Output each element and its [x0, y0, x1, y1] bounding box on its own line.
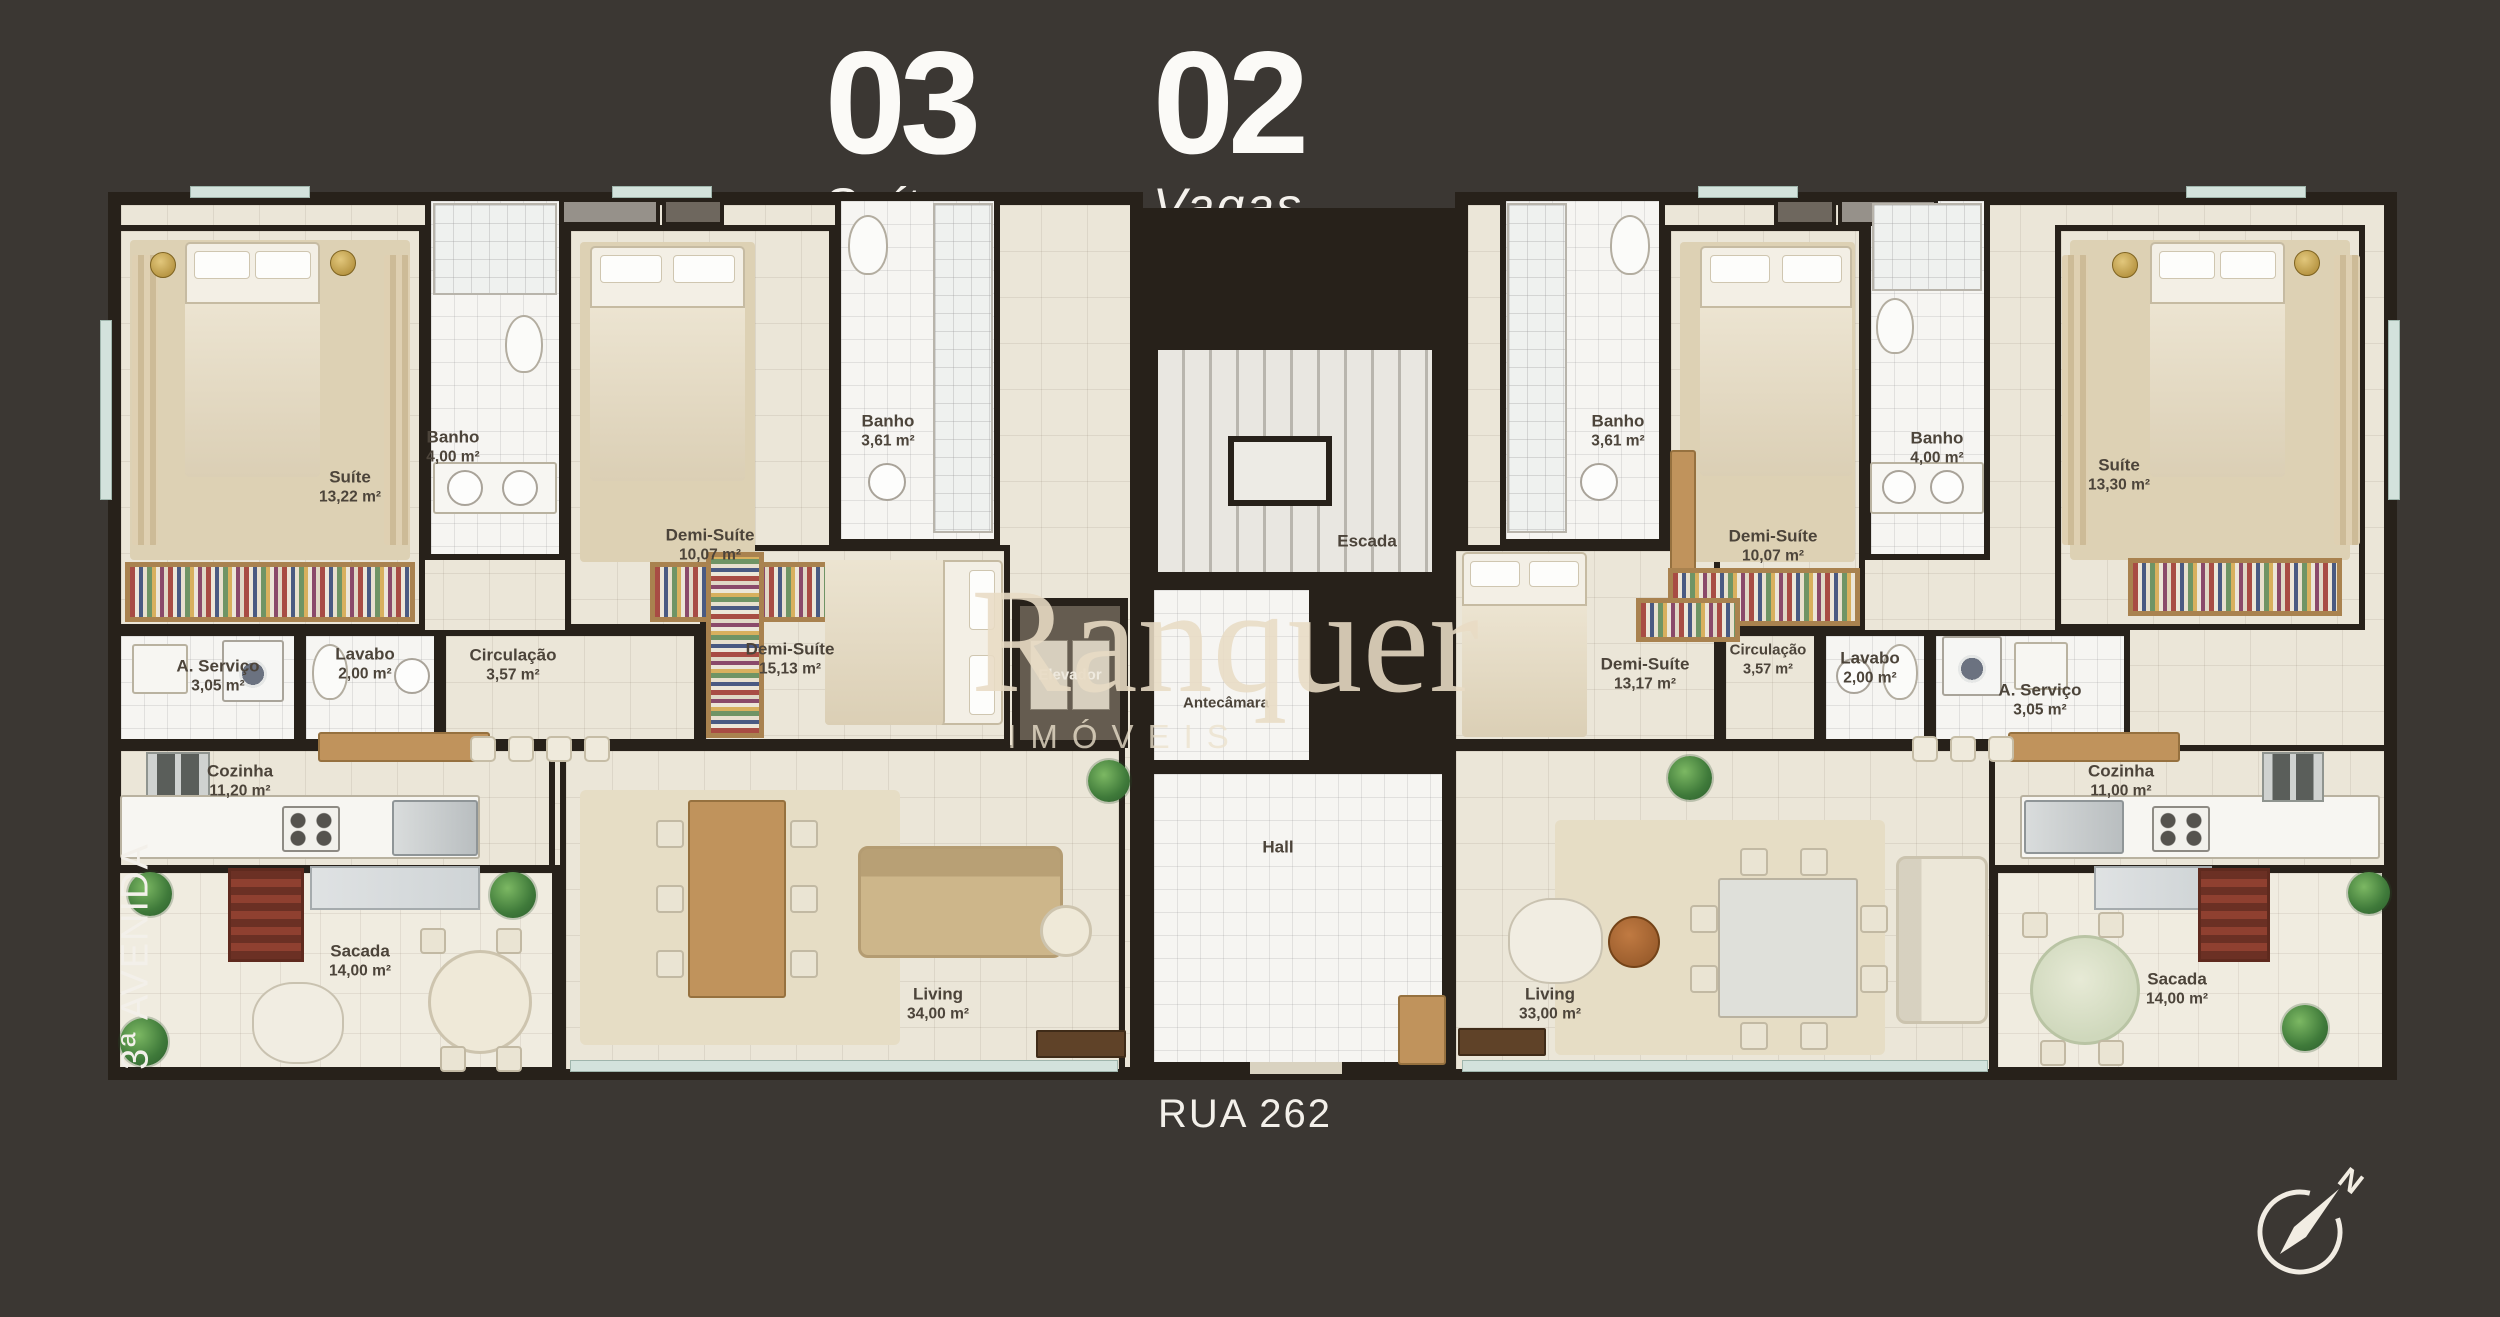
duvet [185, 302, 320, 477]
wardrobe [125, 562, 415, 622]
double-bed [2150, 242, 2285, 477]
duvet [1462, 604, 1587, 737]
tv-console [1458, 1028, 1546, 1056]
toilet [1610, 215, 1650, 275]
room-label-right-living: Living 33,00 m² [1519, 984, 1581, 1025]
toilet [505, 315, 543, 373]
bedside-lamp [150, 252, 176, 278]
chair [656, 950, 684, 978]
closet-niche [560, 198, 660, 226]
room-label-left-banho-4: Banho 4,00 m² [426, 427, 479, 468]
stair-landing [1228, 436, 1332, 506]
bar-stool [584, 736, 610, 762]
pillow [2159, 251, 2215, 279]
bedside-lamp [330, 250, 356, 276]
room-label-hall: Hall [1262, 836, 1293, 857]
stat-vagas-value: 02 [1068, 26, 1388, 181]
balcony-counter [310, 866, 480, 910]
room-label-left-banho-361: Banho 3,61 m² [861, 411, 914, 452]
double-bed [825, 560, 1003, 725]
entry-door-opening [1250, 1062, 1342, 1074]
window-strip [2388, 320, 2400, 500]
pillow [1710, 255, 1770, 283]
room-label-left-suite: Suíte 13,22 m² [319, 467, 381, 508]
chair [1800, 1022, 1828, 1050]
bar-stool [1950, 736, 1976, 762]
stat-suites-value: 03 [740, 26, 1060, 181]
chair [2098, 1040, 2124, 1066]
sofa [858, 846, 1063, 958]
compass-icon: N [2218, 1146, 2388, 1316]
kitchen-bar [2008, 732, 2180, 762]
pillow [969, 570, 995, 630]
dining-table [1718, 878, 1858, 1018]
round-table [428, 950, 532, 1054]
room-label-escada: Escada [1337, 530, 1397, 551]
plant [2348, 872, 2390, 914]
armchair [252, 982, 344, 1064]
bar-stool [1988, 736, 2014, 762]
shower [1507, 203, 1567, 533]
room-label-right-suite: Suíte 13,30 m² [2088, 455, 2150, 496]
pillow [255, 251, 311, 279]
bar-stool [1912, 736, 1938, 762]
sink [1930, 470, 1964, 504]
chair [1860, 905, 1888, 933]
room-label-right-demi-suite-13: Demi-Suíte 13,17 m² [1601, 654, 1690, 695]
side-table [1040, 905, 1092, 957]
chair [790, 820, 818, 848]
plant [1088, 760, 1130, 802]
chair [790, 950, 818, 978]
fridge [392, 800, 478, 856]
curtain [384, 255, 410, 545]
window-strip [1698, 186, 1798, 198]
room-label-right-banho-4: Banho 4,00 m² [1910, 428, 1963, 469]
stove [2152, 806, 2210, 852]
chair [1740, 1022, 1768, 1050]
chair [2040, 1040, 2066, 1066]
pillow [969, 655, 995, 715]
pillow [2220, 251, 2276, 279]
room-label-right-circulacao: Circulação 3,57 m² [1730, 642, 1807, 679]
room-label-left-cozinha: Cozinha 11,20 m² [207, 761, 273, 802]
window-strip [1462, 1060, 1988, 1072]
chair [440, 1046, 466, 1072]
stove [282, 806, 340, 852]
plant [490, 872, 536, 918]
bar-stool [546, 736, 572, 762]
double-bed [1700, 246, 1852, 476]
chair [656, 820, 684, 848]
pillow [1529, 561, 1579, 587]
washing-machine [1942, 636, 2002, 696]
room-label-elevador: Elevador [1038, 667, 1101, 686]
double-bed [590, 246, 745, 481]
duvet [2150, 302, 2285, 477]
room-label-left-lavabo: Lavabo 2,00 m² [335, 644, 395, 685]
room-label-right-demi-suite-10: Demi-Suíte 10,07 m² [1729, 526, 1818, 567]
window-strip [570, 1060, 1118, 1072]
window-strip [190, 186, 310, 198]
closet-niche [662, 198, 724, 226]
hall-console [1398, 995, 1446, 1065]
sink [1882, 470, 1916, 504]
chair [790, 885, 818, 913]
chair [1690, 905, 1718, 933]
kitchen-bar [318, 732, 490, 762]
floorplan-page: { "header": { "stats": [ { "value": "03"… [0, 0, 2500, 1317]
pillow [1782, 255, 1842, 283]
chair [1690, 965, 1718, 993]
double-bed [1462, 552, 1587, 737]
room-label-left-demi-suite-15: Demi-Suíte 15,13 m² [746, 639, 835, 680]
room-label-right-lavabo: Lavabo 2,00 m² [1840, 648, 1900, 689]
pillow [194, 251, 250, 279]
bar-stool [508, 736, 534, 762]
room-label-right-banho-361: Banho 3,61 m² [1591, 411, 1644, 452]
sink [447, 470, 483, 506]
sofa [1896, 856, 1988, 1024]
pouf [1608, 916, 1660, 968]
barbecue-grill [2198, 868, 2270, 962]
room-label-left-living: Living 34,00 m² [907, 984, 969, 1025]
toilet [848, 215, 888, 275]
closet-niche [1774, 198, 1836, 226]
bedside-lamp [2294, 250, 2320, 276]
curtain [2062, 255, 2088, 545]
toilet [1876, 298, 1914, 354]
plant [1668, 756, 1712, 800]
shower [933, 203, 993, 533]
chair [2022, 912, 2048, 938]
window-strip [612, 186, 712, 198]
room-label-right-servico: A. Serviço 3,05 m² [1998, 680, 2081, 721]
wardrobe [2128, 558, 2342, 616]
wardrobe [1636, 598, 1740, 642]
chair [496, 1046, 522, 1072]
pillow [673, 255, 735, 283]
room-label-antecamara: Antecâmara [1183, 695, 1269, 714]
chair [1740, 848, 1768, 876]
room-label-left-demi-suite-10: Demi-Suíte 10,07 m² [666, 525, 755, 566]
chair [420, 928, 446, 954]
chair [1860, 965, 1888, 993]
bedside-lamp [2112, 252, 2138, 278]
pillow [600, 255, 662, 283]
armchair [1508, 898, 1603, 984]
round-table [2030, 935, 2140, 1045]
sink [394, 658, 430, 694]
street-label-left: 3ª AVENIDA [115, 842, 158, 1070]
duvet [1700, 306, 1852, 476]
duvet [825, 560, 945, 725]
chair [496, 928, 522, 954]
kitchen-sink [2262, 752, 2324, 802]
street-label-bottom: RUA 262 [1158, 1092, 1332, 1137]
sink [868, 463, 906, 501]
pillow [1470, 561, 1520, 587]
barbecue-grill [228, 868, 304, 962]
chair [1800, 848, 1828, 876]
sink [1580, 463, 1618, 501]
room-label-right-sacada: Sacada 14,00 m² [2146, 969, 2208, 1010]
window-strip [2186, 186, 2306, 198]
room-label-left-circulacao: Circulação 3,57 m² [470, 645, 557, 686]
chair [656, 885, 684, 913]
sink [502, 470, 538, 506]
plant [2282, 1005, 2328, 1051]
bar-stool [470, 736, 496, 762]
room-label-left-sacada: Sacada 14,00 m² [329, 941, 391, 982]
compass-north-label: N [2332, 1162, 2369, 1201]
curtain [2334, 255, 2360, 545]
room-label-right-cozinha: Cozinha 11,00 m² [2088, 761, 2154, 802]
room-antecamara [1148, 584, 1315, 766]
tv-console [1036, 1030, 1126, 1058]
curtain [132, 255, 158, 545]
shower [433, 203, 557, 295]
duvet [590, 306, 745, 481]
shower [1872, 203, 1982, 291]
chair [2098, 912, 2124, 938]
dining-table [688, 800, 786, 998]
window-strip [100, 320, 112, 500]
balcony-counter [2094, 866, 2212, 910]
fridge [2024, 800, 2124, 854]
double-bed [185, 242, 320, 477]
room-label-left-servico: A. Serviço 3,05 m² [176, 656, 259, 697]
